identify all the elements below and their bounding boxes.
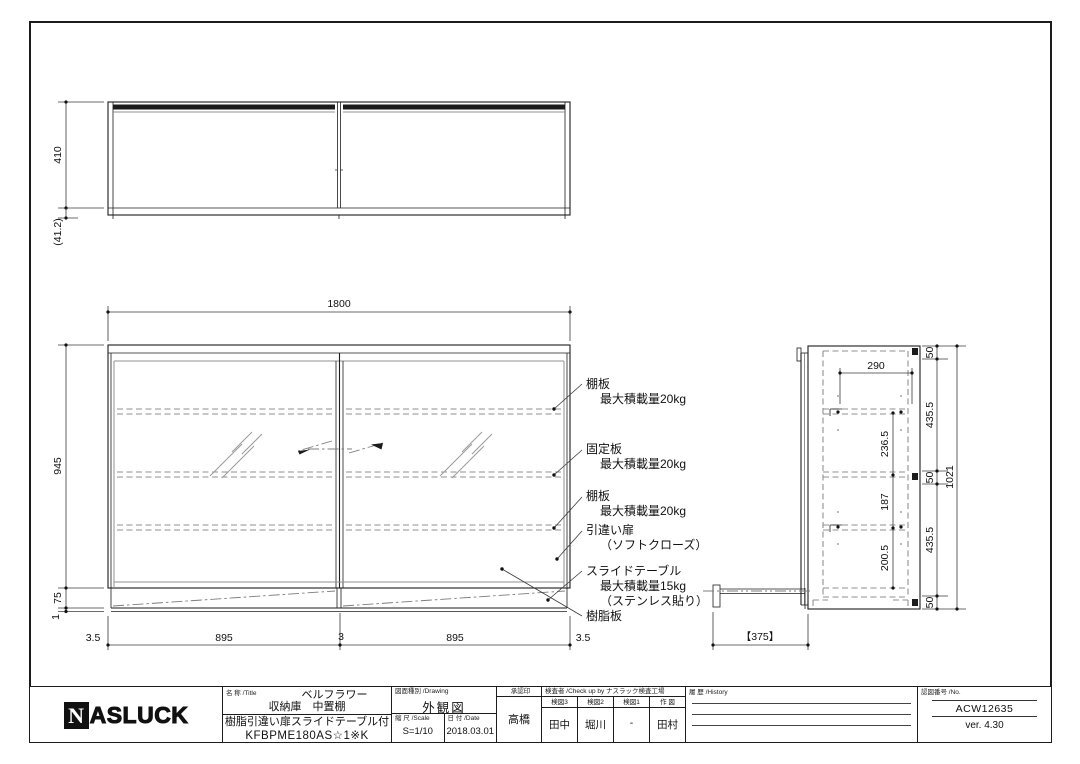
product-name-line2: 収納庫 中置棚: [223, 700, 391, 714]
dim-pitch-2: 187: [879, 493, 891, 511]
name-label: 名 称 /Title: [223, 689, 278, 698]
checkers-cell: 検査者 /Check up by ナスラック検査工場 検図3 検図2 検図1 作…: [542, 687, 686, 743]
annotation-shelf-top: 棚板: [586, 376, 610, 391]
dim-pitch-3: 200.5: [879, 545, 891, 571]
dim-base: 75: [52, 592, 64, 604]
slide-table-extended: [703, 585, 812, 607]
front-view-annotations: 棚板 最大積載量20kg 固定板 最大積載量20kg 棚板 最大積載量20kg …: [500, 376, 708, 623]
dim-seg-4: 435.5: [924, 527, 936, 553]
logo-cell: NASLUCK: [30, 687, 223, 743]
dim-seg-3: 50: [924, 472, 936, 484]
side-view-dimensions: 290 236.5 187 200.5 50 435.5 50 435.5 50…: [711, 344, 966, 650]
checker-role: 検図1: [614, 697, 650, 707]
checker-name: -: [614, 708, 650, 743]
dim-table-projection: 【375】: [741, 631, 780, 643]
checkers-label: 検査者 /Check up by ナスラック検査工場: [542, 687, 685, 696]
top-view: [108, 102, 570, 219]
svg-text:最大積載量20kg: 最大積載量20kg: [600, 503, 686, 518]
dim-offset: (41.2): [52, 218, 64, 245]
svg-text:最大積載量20kg: 最大積載量20kg: [600, 391, 686, 406]
drawing-type-cell: 図面種別 /Drawing 外観図 縮 尺 /Scale S=1/10 日 付 …: [392, 687, 497, 743]
drawing-version: ver. 4.30: [918, 717, 1051, 731]
dim-seg-2: 435.5: [924, 402, 936, 428]
history-cell: 履 歴 /History: [686, 687, 918, 743]
date-value: 2018.03.01: [445, 726, 497, 737]
annotation-resin-board: 樹脂板: [586, 608, 622, 623]
drawing-number: ACW12635: [918, 701, 1051, 716]
side-shelf-lines: [823, 395, 908, 545]
scale-label: 縮 尺 /Scale: [392, 714, 444, 723]
front-view: [108, 345, 570, 612]
dim-gap-center: 3: [338, 631, 344, 643]
approval-label: 承認印: [497, 687, 541, 696]
dim-shelf-width: 290: [867, 360, 885, 372]
glass-marks: [210, 432, 492, 478]
dim-depth: 410: [52, 146, 64, 164]
dim-seg-5: 50: [924, 597, 936, 609]
date-label: 日 付 /Date: [445, 714, 497, 723]
approval-name: 高橋: [497, 711, 541, 727]
checker-name: 田村: [650, 708, 685, 743]
annotation-slide-table: スライドテーブル: [586, 563, 681, 578]
history-rule: [692, 714, 911, 715]
checker-name: 田中: [542, 708, 578, 743]
checker-name: 堀川: [578, 708, 614, 743]
product-name-line3: 樹脂引違い扉スライドテーブル付: [223, 715, 391, 729]
svg-text:（ステンレス貼り）: （ステンレス貼り）: [600, 593, 708, 608]
checker-role: 検図2: [578, 697, 614, 707]
dim-gap-right: 3.5: [576, 632, 591, 644]
svg-text:（ソフトクローズ）: （ソフトクローズ）: [600, 537, 707, 552]
page-border: [30, 22, 1051, 742]
checker-role: 作 図: [650, 697, 685, 707]
history-rule: [692, 725, 911, 726]
title-block: NASLUCK 名 称 /Title ベルフラワー 収納庫 中置棚 樹脂引違い扉…: [30, 686, 1051, 742]
dim-height: 945: [52, 457, 64, 475]
history-label: 履 歴 /History: [686, 687, 917, 697]
top-view-dimensions: 410 (41.2): [52, 100, 104, 245]
dim-pitch-1: 236.5: [879, 431, 891, 457]
drawing-canvas: 410 (41.2): [0, 0, 1080, 764]
dim-width: 1800: [327, 298, 351, 310]
slide-direction-arrows: [298, 441, 383, 455]
drawing-type-label: 図面種別 /Drawing: [392, 687, 496, 696]
dim-overall-height: 1021: [944, 465, 956, 489]
dim-edge: 1: [50, 614, 62, 620]
drawing-sheet: { "title_block": { "logo_n": "N", "logo_…: [0, 0, 1080, 764]
annotation-fixed-shelf: 固定板: [586, 441, 622, 456]
scale-value: S=1/10: [392, 726, 444, 737]
nasluck-logo: ASLUCK: [90, 702, 189, 729]
base-band: [111, 588, 567, 612]
dim-seg-1: 50: [924, 347, 936, 359]
front-view-dimensions: 1800 945 75 1 3.5 895 3 895 3.5: [50, 298, 590, 650]
svg-text:最大積載量20kg: 最大積載量20kg: [600, 456, 686, 471]
dim-door-right: 895: [446, 632, 464, 644]
dim-gap-left: 3.5: [86, 632, 101, 644]
approval-cell: 承認印 高橋: [497, 687, 542, 743]
title-cell: 名 称 /Title ベルフラワー 収納庫 中置棚 樹脂引違い扉スライドテーブル…: [223, 687, 392, 743]
number-label: 認図番号 /No.: [918, 687, 1051, 697]
nasluck-logo-n: N: [64, 702, 89, 729]
dim-door-left: 895: [215, 632, 233, 644]
number-cell: 認図番号 /No. ACW12635 ver. 4.30: [918, 687, 1051, 743]
svg-text:最大積載量15kg: 最大積載量15kg: [600, 578, 686, 593]
history-rule: [692, 703, 911, 704]
checker-role: 検図3: [542, 697, 578, 707]
annotation-shelf-bottom: 棚板: [586, 488, 610, 503]
annotation-sliding-door: 引違い扉: [586, 523, 634, 537]
product-code: KFBPME180AS☆1※K: [223, 729, 391, 743]
